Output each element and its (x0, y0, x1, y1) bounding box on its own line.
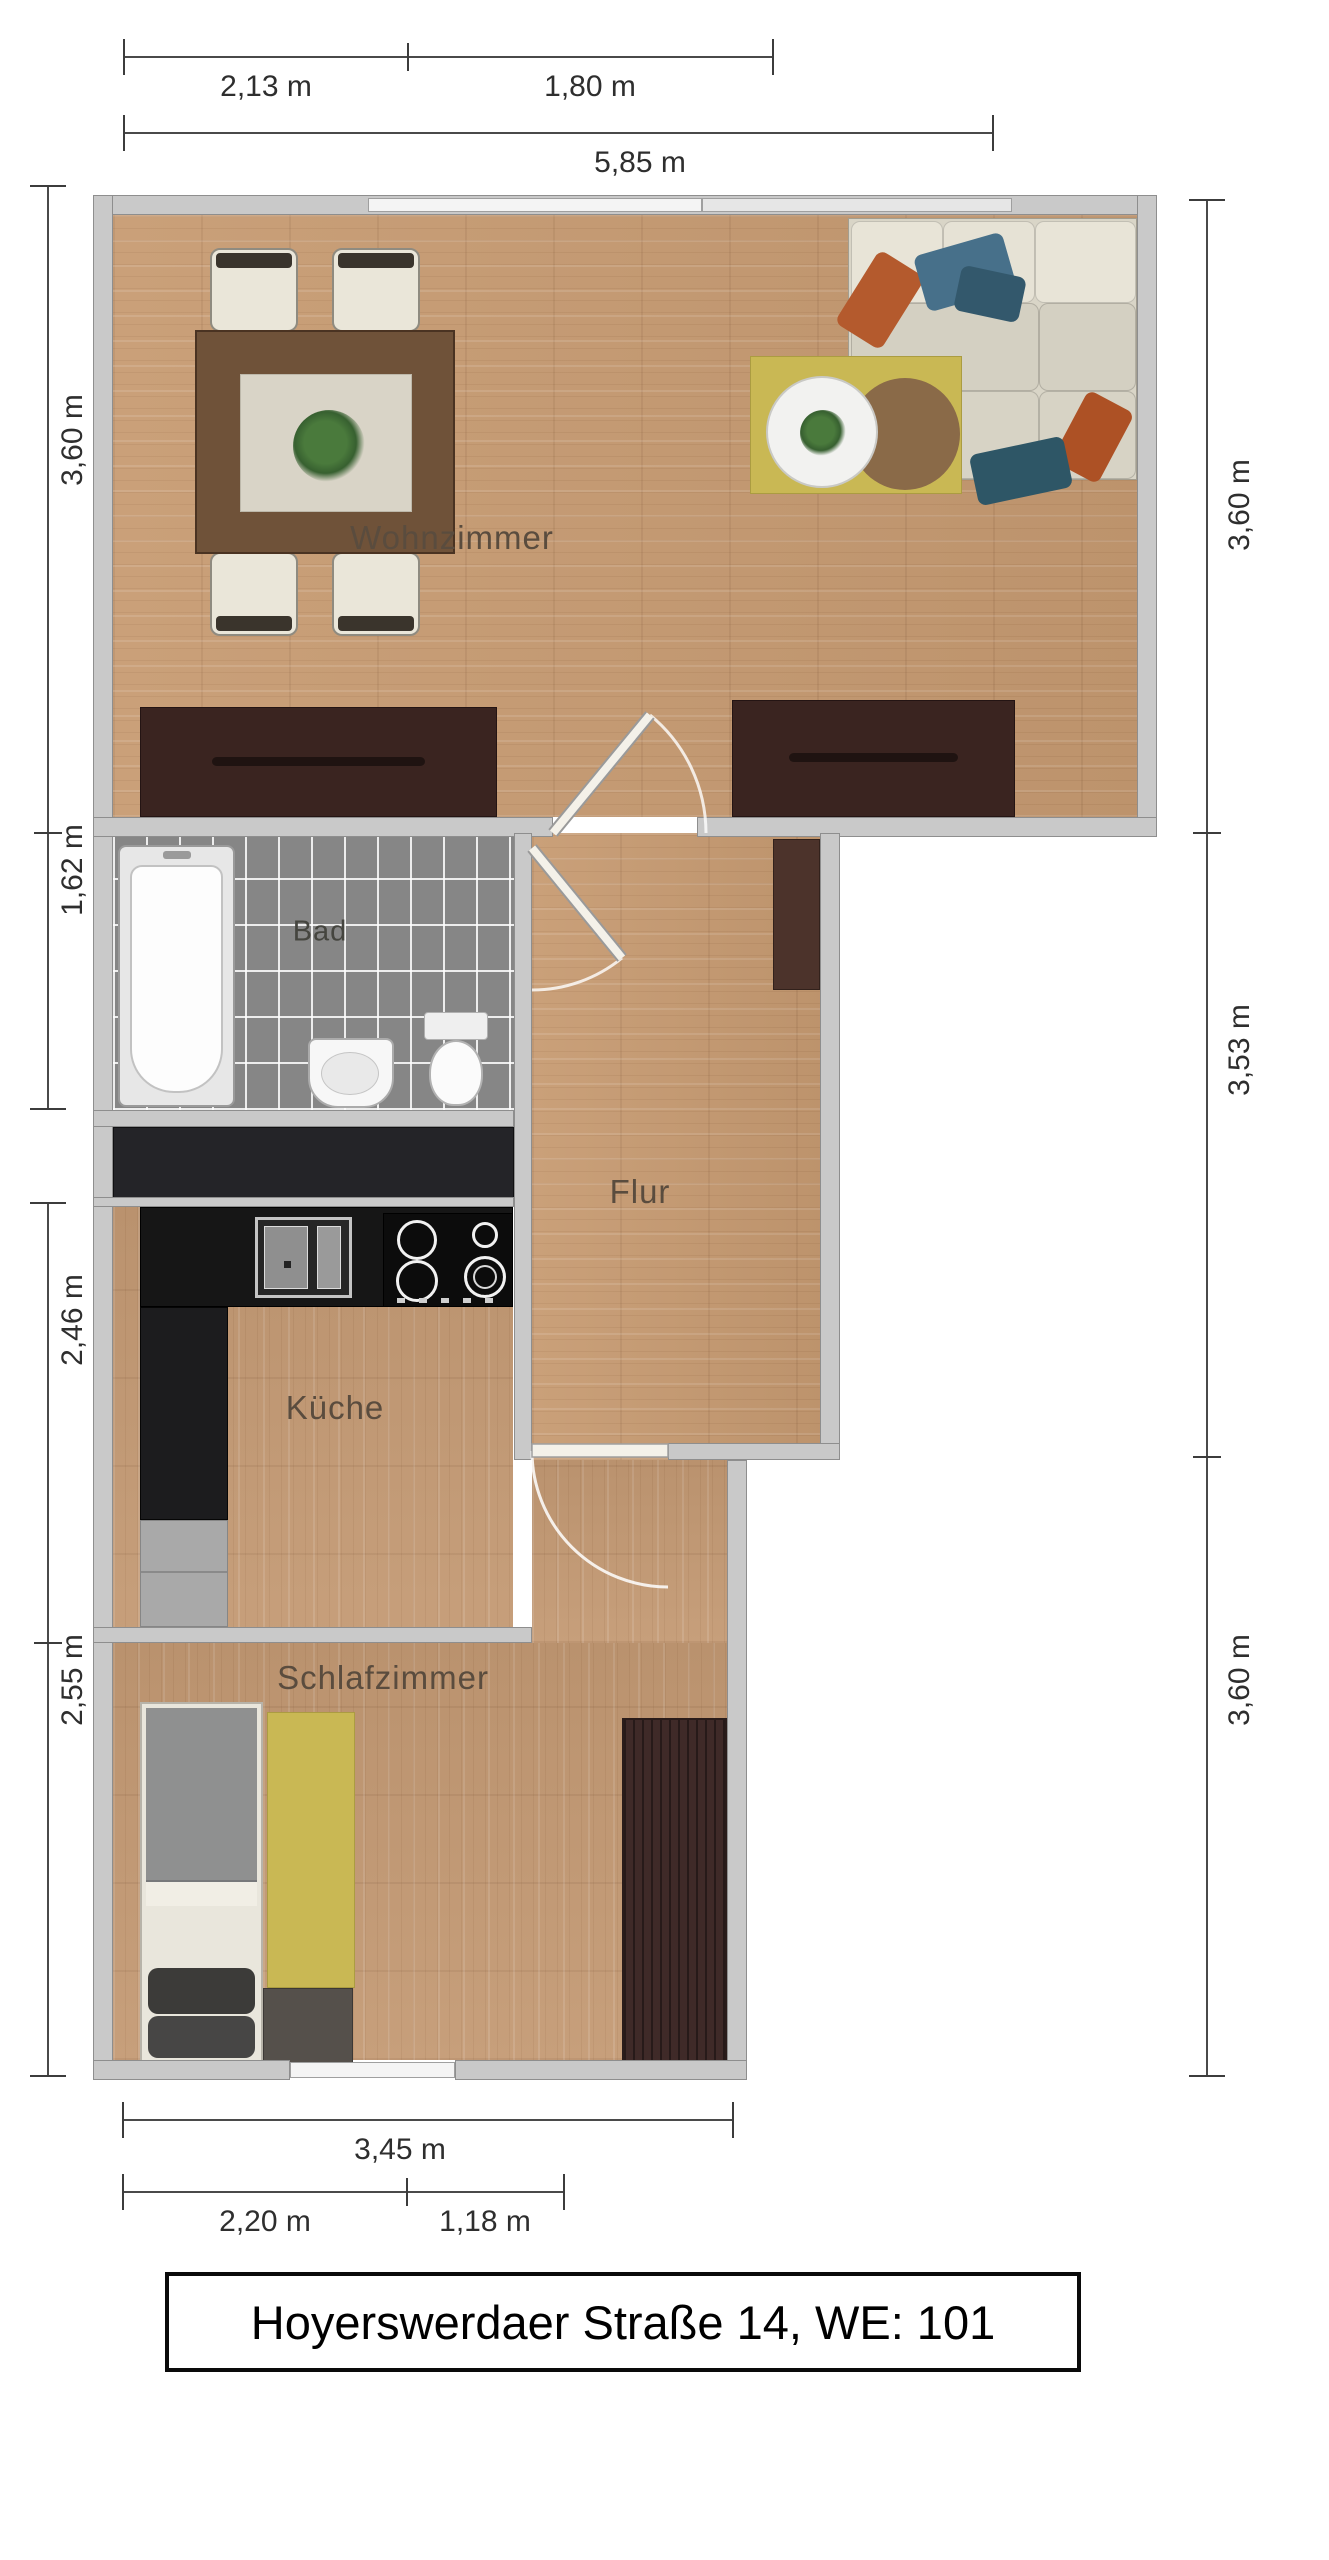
dim-line-right (1206, 200, 1208, 2077)
room-label-bad: Bad (293, 916, 348, 949)
dim-top-seg2: 1,80 m (520, 70, 660, 104)
door-swings (0, 0, 1329, 2560)
room-label-wohnzimmer: Wohnzimmer (350, 519, 554, 557)
dim-bottom-seg1: 2,20 m (195, 2205, 335, 2239)
dim-bottom-total: 3,45 m (330, 2133, 470, 2167)
room-label-flur: Flur (610, 1173, 671, 1211)
dim-top-total: 5,85 m (570, 146, 710, 180)
bedroom-door-arc (532, 1451, 668, 1587)
floor-plan: Wohnzimmer Bad Flur Küche Schlafzimmer 2… (0, 0, 1329, 2560)
dim-top-seg1: 2,13 m (196, 70, 336, 104)
dim-left-b1: 2,46 m (56, 1250, 90, 1390)
dim-left-a1: 3,60 m (56, 370, 90, 510)
dim-right-r1: 3,60 m (1223, 435, 1257, 575)
dim-line-left-b (47, 1203, 49, 2077)
room-label-kueche: Küche (286, 1389, 385, 1427)
title-box: Hoyerswerdaer Straße 14, WE: 101 (165, 2272, 1081, 2372)
dim-line-bottom-segments (123, 2191, 564, 2193)
bedroom-door-leaf (532, 1444, 668, 1457)
room-label-schlafzimmer: Schlafzimmer (277, 1659, 489, 1697)
dim-right-r2: 3,53 m (1223, 980, 1257, 1120)
dim-line-top-total (124, 132, 993, 134)
bathroom-door-arc (532, 958, 622, 990)
dim-bottom-seg2: 1,18 m (415, 2205, 555, 2239)
dim-line-bottom-total (123, 2119, 733, 2121)
living-room-door-leaf (553, 715, 650, 833)
dim-line-left-a (47, 186, 49, 1110)
bathroom-door-leaf (532, 848, 622, 958)
living-room-door-arc (650, 715, 706, 833)
dim-left-b2: 2,55 m (56, 1610, 90, 1750)
dim-line-top-segments (124, 56, 773, 58)
dim-right-r3: 3,60 m (1223, 1610, 1257, 1750)
dim-left-a2: 1,62 m (56, 800, 90, 940)
plan-title: Hoyerswerdaer Straße 14, WE: 101 (251, 2295, 995, 2350)
